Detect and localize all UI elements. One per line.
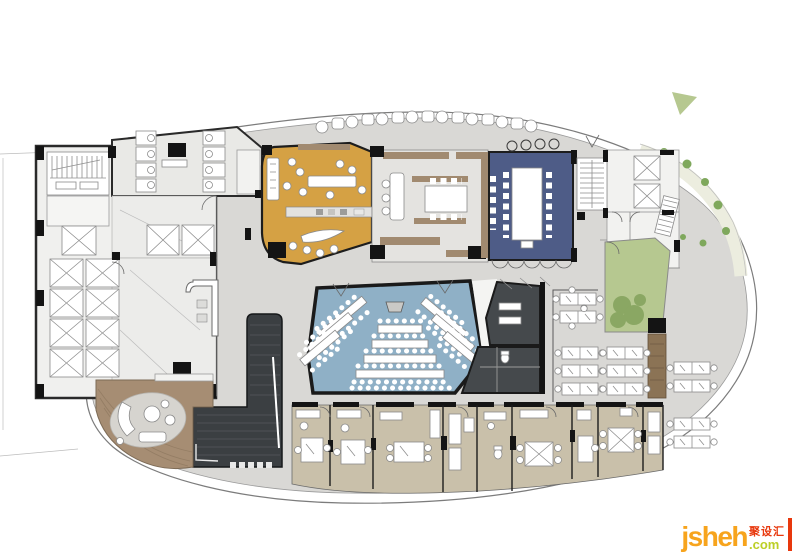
dining-room — [370, 146, 488, 262]
floor-plan-screenshot: jsheh 聚设汇 .com — [0, 0, 800, 552]
control-room — [486, 282, 540, 345]
stairwell-left — [47, 152, 109, 195]
private-office-band — [292, 402, 663, 493]
service-counter — [286, 207, 372, 217]
elevator-cell — [634, 184, 660, 208]
elevator-cell — [182, 225, 214, 255]
toilet — [501, 351, 509, 363]
washbasin-counter — [162, 160, 187, 167]
green-courtyard — [605, 238, 670, 332]
desk-cluster-b — [555, 347, 605, 395]
watermark-tld: .com — [749, 538, 779, 551]
coffee-table — [144, 406, 160, 422]
buffet-counter — [412, 176, 468, 182]
tea-room-counter-top — [298, 144, 350, 150]
watermark-brand: jsheh — [681, 523, 747, 551]
conference-table — [512, 168, 542, 240]
buffet-counter — [414, 218, 466, 224]
elevator-cell — [62, 226, 96, 255]
column — [268, 242, 286, 258]
elevator-cell — [634, 156, 660, 180]
elevator-cell — [147, 225, 179, 255]
side-bar-table — [382, 173, 404, 220]
desk-cluster-c — [600, 347, 650, 395]
terrace-green-triangle — [672, 92, 697, 115]
watermark: jsheh 聚设汇 .com — [677, 515, 800, 552]
podium — [386, 302, 404, 312]
auditorium — [297, 280, 483, 393]
restrooms — [112, 127, 262, 206]
control-desk — [499, 317, 521, 324]
wood-cabinet — [648, 334, 666, 398]
dining-table — [425, 181, 467, 217]
stairwell-right — [577, 158, 607, 210]
column — [245, 228, 251, 240]
janitor-room — [237, 150, 260, 194]
sofa — [139, 432, 166, 442]
blue-meeting-room — [481, 139, 577, 268]
control-desk — [499, 303, 521, 310]
floor-plan-canvas — [0, 0, 800, 552]
service-shaft — [168, 143, 186, 157]
watermark-red-bar — [788, 518, 792, 551]
deck-console — [155, 374, 213, 381]
stair-lobby — [47, 196, 109, 226]
tea-table — [308, 176, 356, 187]
